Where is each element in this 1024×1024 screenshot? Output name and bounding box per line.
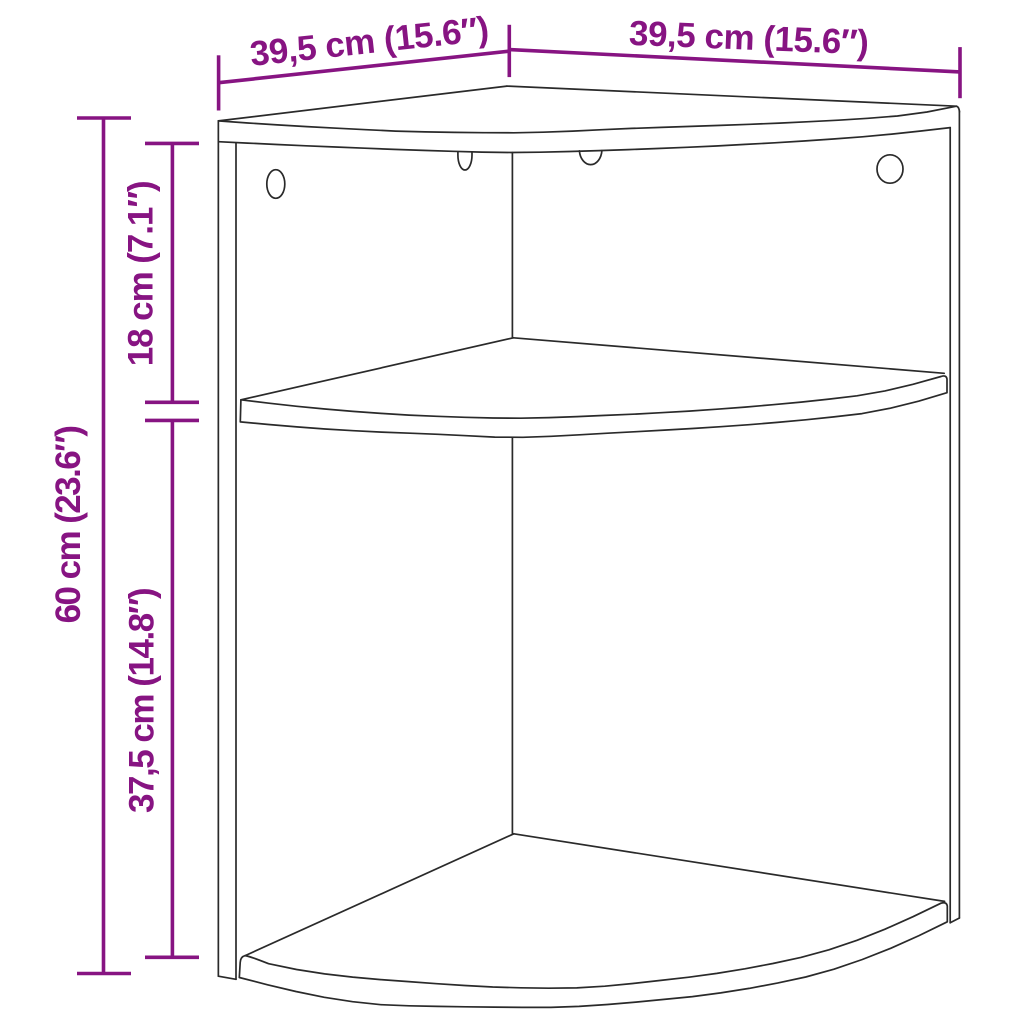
svg-text:37,5 cm (14.8″): 37,5 cm (14.8″) — [123, 587, 162, 813]
svg-text:18 cm (7.1″): 18 cm (7.1″) — [122, 180, 161, 366]
svg-text:60 cm (23.6″): 60 cm (23.6″) — [49, 425, 88, 623]
